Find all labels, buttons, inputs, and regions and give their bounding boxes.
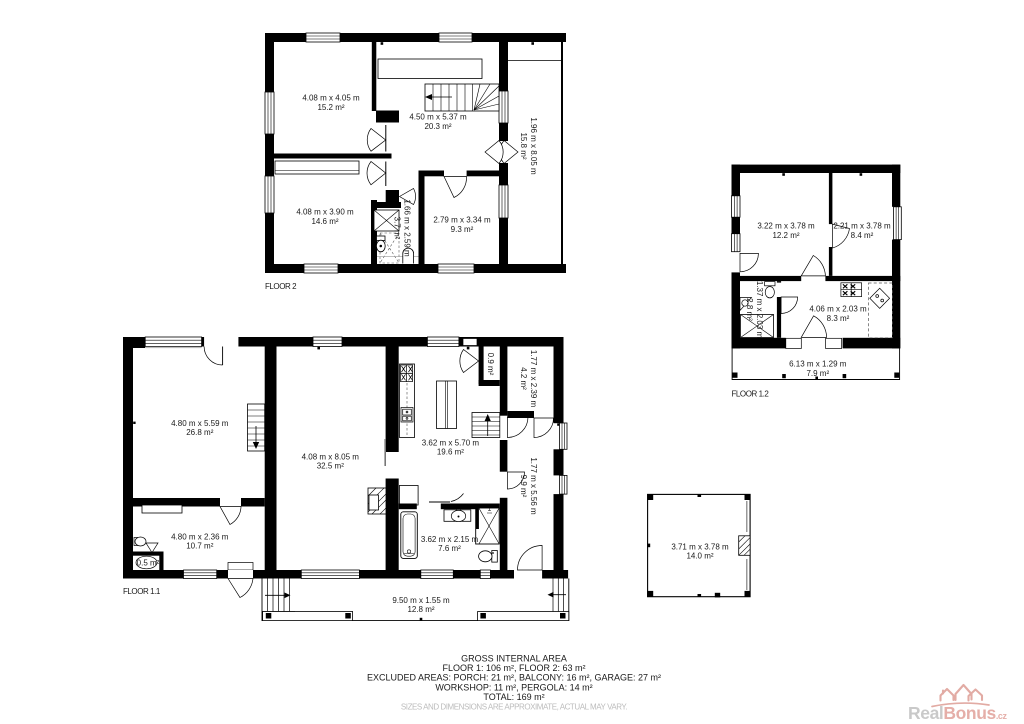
svg-text:4.50 m x 5.37 m: 4.50 m x 5.37 m — [409, 113, 467, 122]
svg-text:1.96 m x 8.05 m: 1.96 m x 8.05 m — [529, 117, 538, 175]
svg-text:7.6 m²: 7.6 m² — [438, 544, 461, 553]
svg-text:15.2 m²: 15.2 m² — [317, 103, 344, 112]
svg-text:FLOOR 2: FLOOR 2 — [265, 282, 297, 291]
svg-text:1.77 m x 5.56 m: 1.77 m x 5.56 m — [529, 457, 538, 515]
svg-text:4.80 m x 5.59 m: 4.80 m x 5.59 m — [171, 419, 229, 428]
svg-text:9.50 m x 1.55 m: 9.50 m x 1.55 m — [392, 596, 450, 605]
svg-text:FLOOR 1.2: FLOOR 1.2 — [732, 390, 770, 399]
svg-text:1.77 m x 2.39 m: 1.77 m x 2.39 m — [529, 350, 538, 408]
svg-text:GROSS INTERNAL AREA: GROSS INTERNAL AREA — [461, 653, 567, 663]
svg-text:14.6 m²: 14.6 m² — [311, 217, 338, 226]
svg-text:15.8 m²: 15.8 m² — [519, 132, 528, 159]
svg-text:WORKSHOP: 11 m², PERGOLA: 14 m: WORKSHOP: 11 m², PERGOLA: 14 m² — [435, 682, 592, 692]
svg-text:3.62 m x 2.15 m: 3.62 m x 2.15 m — [421, 535, 479, 544]
svg-text:RealBonus.cz: RealBonus.cz — [908, 703, 1008, 723]
svg-text:FLOOR 1.1: FLOOR 1.1 — [123, 587, 161, 596]
svg-text:4.08 m x 3.90 m: 4.08 m x 3.90 m — [296, 208, 354, 217]
svg-text:26.8 m²: 26.8 m² — [186, 428, 213, 437]
svg-text:12.8 m²: 12.8 m² — [407, 605, 434, 614]
svg-text:4.06 m x 2.03 m: 4.06 m x 2.03 m — [809, 305, 867, 314]
svg-text:4.2 m²: 4.2 m² — [519, 367, 528, 390]
svg-text:EXCLUDED AREAS: PORCH: 21 m²,: EXCLUDED AREAS: PORCH: 21 m², BALCONY: 1… — [367, 673, 661, 683]
svg-text:9.3 m²: 9.3 m² — [451, 225, 474, 234]
svg-text:14.0 m²: 14.0 m² — [686, 552, 713, 561]
svg-text:9.9 m²: 9.9 m² — [519, 475, 528, 498]
svg-text:2.21 m x 3.78 m: 2.21 m x 3.78 m — [833, 222, 891, 231]
svg-text:8.4 m²: 8.4 m² — [851, 231, 874, 240]
svg-text:32.5 m²: 32.5 m² — [317, 462, 344, 471]
svg-text:1.66 m x 2.59 m: 1.66 m x 2.59 m — [403, 199, 412, 257]
svg-text:10.7 m²: 10.7 m² — [186, 542, 213, 551]
svg-text:3.7 m²: 3.7 m² — [393, 217, 402, 240]
svg-text:2.8 m²: 2.8 m² — [745, 298, 754, 321]
svg-text:2.79 m x 3.34 m: 2.79 m x 3.34 m — [433, 216, 491, 225]
svg-text:FLOOR 1: 106 m², FLOOR 2: 63 m: FLOOR 1: 106 m², FLOOR 2: 63 m² — [442, 663, 585, 673]
svg-text:19.6 m²: 19.6 m² — [437, 448, 464, 457]
svg-text:0.9 m²: 0.9 m² — [486, 353, 495, 376]
svg-text:6.13 m x 1.29 m: 6.13 m x 1.29 m — [789, 360, 847, 369]
svg-text:TOTAL: 169 m²: TOTAL: 169 m² — [483, 692, 544, 702]
svg-text:3.71 m x 3.78 m: 3.71 m x 3.78 m — [671, 542, 729, 551]
svg-text:SIZES AND DIMENSIONS ARE APPRO: SIZES AND DIMENSIONS ARE APPROXIMATE, AC… — [401, 702, 628, 711]
svg-text:7.9 m²: 7.9 m² — [806, 369, 829, 378]
svg-text:12.2 m²: 12.2 m² — [772, 231, 799, 240]
svg-text:4.80 m x 2.36 m: 4.80 m x 2.36 m — [171, 532, 229, 541]
svg-text:3.22 m x 3.78 m: 3.22 m x 3.78 m — [757, 222, 815, 231]
svg-text:8.3 m²: 8.3 m² — [827, 314, 850, 323]
svg-text:4.08 m x 4.05 m: 4.08 m x 4.05 m — [302, 94, 360, 103]
svg-text:0.5 m²: 0.5 m² — [137, 559, 160, 568]
svg-text:20.3 m²: 20.3 m² — [424, 122, 451, 131]
svg-text:1.37 m x 2.03 m: 1.37 m x 2.03 m — [755, 281, 764, 339]
svg-text:3.62 m x 5.70 m: 3.62 m x 5.70 m — [422, 438, 480, 447]
svg-text:4.08 m x 8.05 m: 4.08 m x 8.05 m — [302, 452, 360, 461]
